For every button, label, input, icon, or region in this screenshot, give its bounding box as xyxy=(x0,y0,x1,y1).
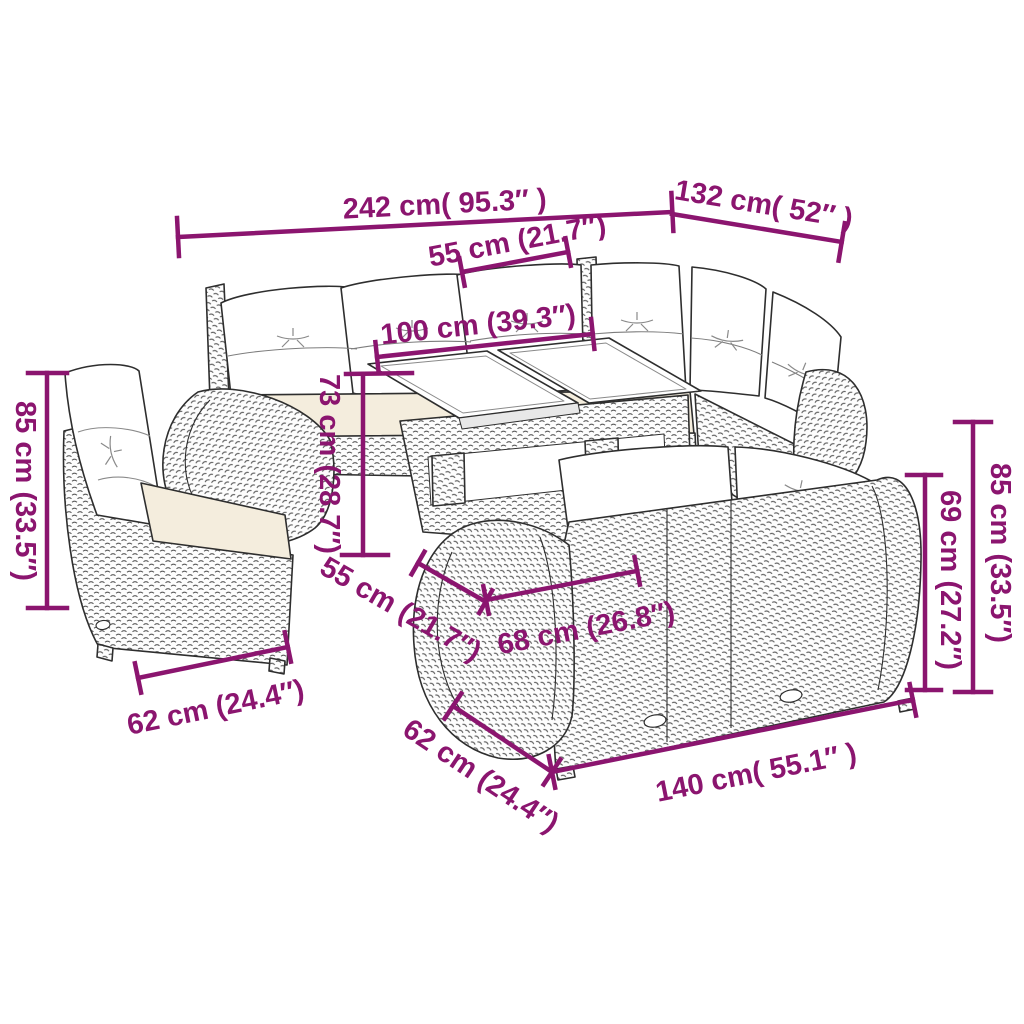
dimension-tick xyxy=(591,319,594,349)
dimension-diagram: 242 cm( 95.3″ ) 132 cm( 52″ ) 55 cm (21.… xyxy=(0,0,1024,1024)
dimension-overall-depth: 132 cm( 52″ ) xyxy=(668,174,855,261)
dimension-label: 73 cm (28.7″) xyxy=(313,374,345,554)
diagram-canvas: 242 cm( 95.3″ ) 132 cm( 52″ ) 55 cm (21.… xyxy=(0,0,1024,1024)
dimension-label: 140 cm( 55.1″ ) xyxy=(653,737,859,808)
dimension-label: 62 cm (24.4″) xyxy=(124,674,307,742)
dimension-cap xyxy=(346,373,412,374)
dimension-tick xyxy=(375,342,378,372)
armchair-foot xyxy=(97,644,113,661)
dimension-tick xyxy=(177,218,179,256)
dimension-label: 85 cm (33.5″) xyxy=(984,463,1016,643)
armchair-foot xyxy=(269,658,285,674)
dimension-label: 85 cm (33.5″) xyxy=(9,401,41,581)
dimension-total-height-left: 85 cm (33.5″) xyxy=(9,373,67,608)
table-leg xyxy=(432,453,465,506)
dimension-tick xyxy=(135,663,141,692)
dimension-label: 132 cm( 52″ ) xyxy=(672,174,855,235)
dimension-tick xyxy=(549,756,555,787)
dimension-label: 69 cm (27.2″) xyxy=(934,490,966,670)
